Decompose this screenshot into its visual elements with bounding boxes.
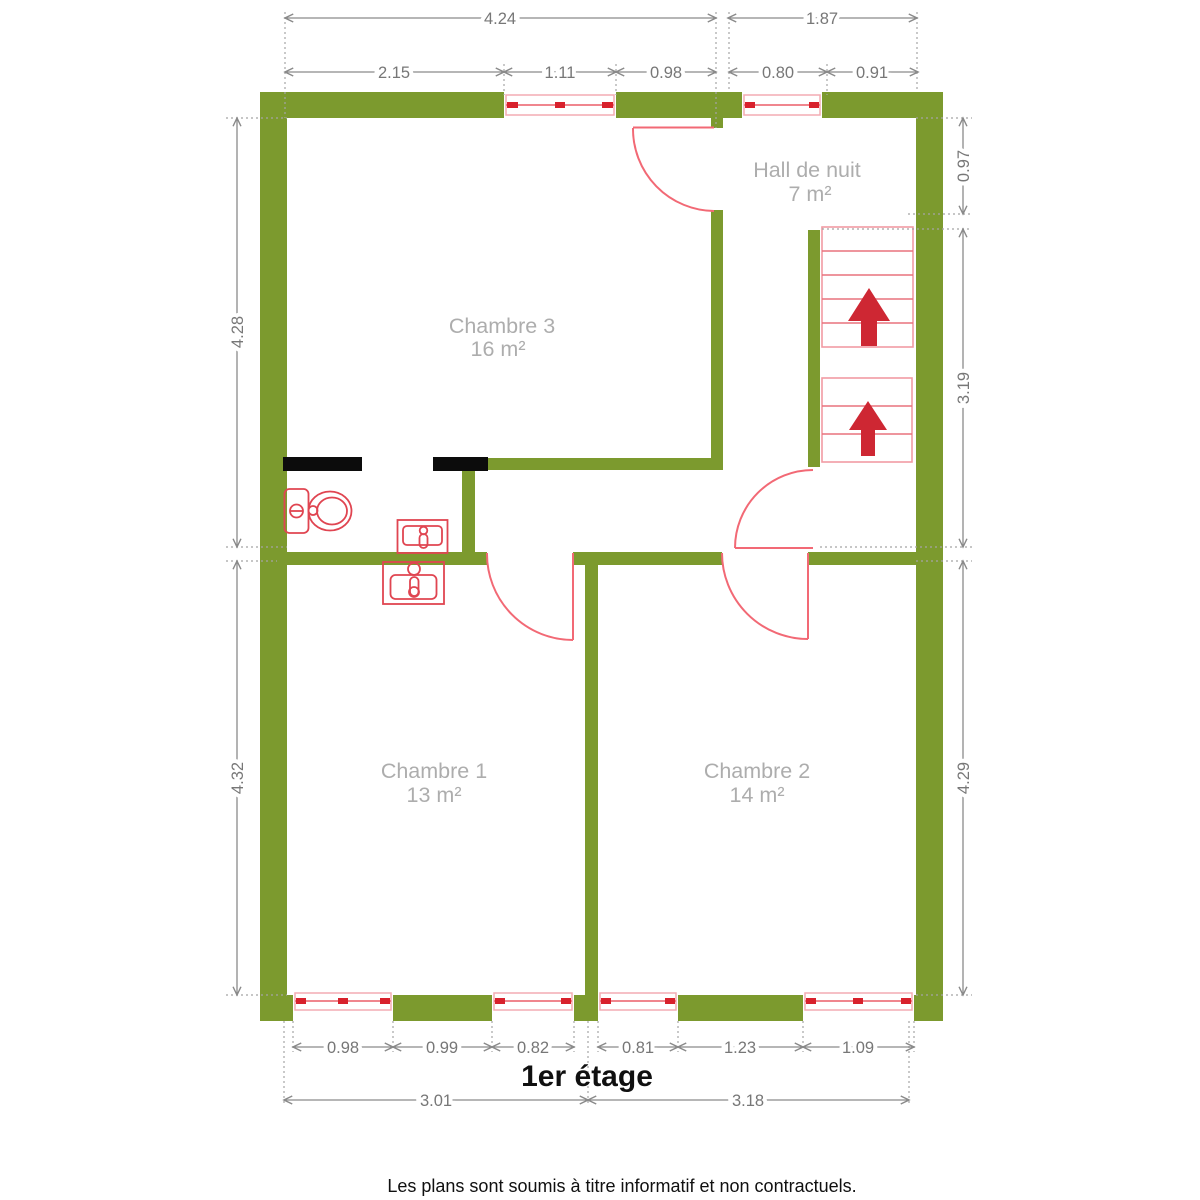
- room-area-hall: 7 m²: [789, 182, 832, 206]
- dim-label: 4.28: [229, 316, 247, 348]
- wall-wc-stub: [462, 470, 475, 552]
- dim-right-3: 4.29: [955, 561, 973, 995]
- floor-plan-svg: 4.24 1.87 2.15 1.11 0.98 0.80 0.91: [0, 0, 1200, 1200]
- sink-large-icon: [383, 562, 444, 604]
- dim-label: 0.97: [955, 150, 973, 182]
- window-top-a: [504, 92, 616, 118]
- dim-label: 3.01: [420, 1092, 452, 1110]
- dim-label: 4.29: [955, 762, 973, 794]
- dim-label: 1.09: [842, 1039, 874, 1057]
- wall-middle-left: [260, 552, 487, 565]
- window-bottom-2: [492, 993, 574, 1021]
- dim-label: 1.23: [724, 1039, 756, 1057]
- door-chambre2: [722, 553, 808, 639]
- dim-top-detail-2: 1.11: [504, 64, 616, 82]
- window-tick: [495, 998, 505, 1004]
- staircase: [822, 227, 913, 462]
- dim-left-1: 4.28: [229, 118, 247, 547]
- dim-bottom-overall-1: 3.01: [284, 1092, 588, 1110]
- dim-bottom-detail-2: 0.99: [393, 1039, 492, 1057]
- room-area-chambre1: 13 m²: [407, 783, 462, 807]
- window-tick: [555, 102, 565, 108]
- window-tick: [338, 998, 348, 1004]
- window-tick: [809, 102, 819, 108]
- window-tick: [745, 102, 755, 108]
- window-tick: [601, 998, 611, 1004]
- dim-bottom-detail-6: 1.09: [803, 1039, 914, 1057]
- door-swing-arc: [633, 128, 714, 211]
- window-tick: [561, 998, 571, 1004]
- room-label-chambre2: Chambre 2: [704, 759, 810, 783]
- room-area-chambre3: 16 m²: [471, 337, 526, 361]
- window-tick: [853, 998, 863, 1004]
- dim-label: 1.11: [545, 64, 576, 82]
- lintel-left: [283, 457, 362, 471]
- dim-top-overall-2: 1.87: [728, 10, 917, 28]
- stairs-lower-flight: [822, 378, 912, 462]
- arrow-stem: [861, 430, 875, 456]
- wall-middle-center: [573, 552, 722, 565]
- dim-left-2: 4.32: [229, 561, 247, 995]
- wall-chambre1-chambre2: [585, 565, 598, 995]
- dim-label: 2.15: [378, 64, 410, 82]
- wall-stairwell: [808, 230, 820, 467]
- arrow-stem: [861, 321, 877, 346]
- dim-label: 4.24: [484, 10, 516, 28]
- window-bottom-4: [803, 993, 914, 1021]
- window-tick: [507, 102, 518, 108]
- room-label-chambre1: Chambre 1: [381, 759, 487, 783]
- toilet-bowl-inner: [317, 498, 347, 525]
- disclaimer-text: Les plans sont soumis à titre informatif…: [387, 1176, 856, 1196]
- door-chambre3: [633, 128, 714, 212]
- sink-basin: [403, 526, 442, 545]
- window-tick: [296, 998, 306, 1004]
- lintels: [283, 457, 488, 471]
- window-top-b: [742, 92, 822, 118]
- dim-label: 3.18: [732, 1092, 764, 1110]
- floor-plan-page: 4.24 1.87 2.15 1.11 0.98 0.80 0.91: [0, 0, 1200, 1200]
- dim-label: 3.19: [955, 372, 973, 404]
- dim-bottom-overall-2: 3.18: [588, 1092, 909, 1110]
- dim-label: 0.98: [327, 1039, 359, 1057]
- dim-bottom-detail-3: 0.82: [492, 1039, 574, 1057]
- room-labels: Chambre 3 16 m² Hall de nuit 7 m² Chambr…: [381, 158, 861, 807]
- dim-bottom-detail-5: 1.23: [678, 1039, 803, 1057]
- dim-label: 0.99: [426, 1039, 458, 1057]
- toilet-icon: [285, 489, 352, 533]
- door-hall-landing: [735, 470, 813, 548]
- dim-label: 0.98: [650, 64, 682, 82]
- window-tick: [602, 102, 613, 108]
- dim-top-detail-5: 0.91: [827, 64, 918, 82]
- sink-small-icon: [398, 520, 448, 553]
- wall-middle-right: [808, 552, 943, 565]
- dim-label: 0.80: [762, 64, 794, 82]
- room-label-hall: Hall de nuit: [753, 158, 861, 182]
- dim-top-overall-1: 4.24: [285, 10, 716, 28]
- dim-top-detail-4: 0.80: [729, 64, 827, 82]
- wall-chambre3-hall: [711, 210, 723, 470]
- lintel-right: [433, 457, 488, 471]
- window-tick: [380, 998, 390, 1004]
- floor-title: 1er étage: [521, 1060, 653, 1093]
- window-bottom-1: [293, 993, 393, 1021]
- window-bottom-3: [598, 993, 678, 1021]
- dim-right-1: 0.97: [955, 118, 973, 214]
- sink-spout: [420, 534, 428, 548]
- stairs-upper-flight: [822, 227, 913, 347]
- window-tick: [665, 998, 675, 1004]
- wall-chambre3-bottom: [488, 458, 723, 470]
- dim-label: 0.82: [517, 1039, 549, 1057]
- dim-label: 4.32: [229, 762, 247, 794]
- dim-bottom-detail-1: 0.98: [293, 1039, 393, 1057]
- door-swing-arc: [487, 553, 573, 640]
- door-chambre1: [487, 553, 573, 640]
- dim-label: 0.91: [856, 64, 888, 82]
- window-tick: [806, 998, 816, 1004]
- dim-label: 0.81: [622, 1039, 654, 1057]
- bathroom-fixtures: [285, 489, 448, 604]
- dim-top-detail-3: 0.98: [616, 64, 716, 82]
- dim-right-2: 3.19: [955, 229, 973, 547]
- dim-top-detail-1: 2.15: [285, 64, 504, 82]
- window-tick: [901, 998, 911, 1004]
- dim-bottom-detail-4: 0.81: [598, 1039, 678, 1057]
- dim-label: 1.87: [806, 10, 838, 28]
- room-area-chambre2: 14 m²: [730, 783, 785, 807]
- door-swing-arc: [722, 553, 808, 639]
- room-label-chambre3: Chambre 3: [449, 314, 555, 338]
- door-swing-arc: [735, 470, 813, 548]
